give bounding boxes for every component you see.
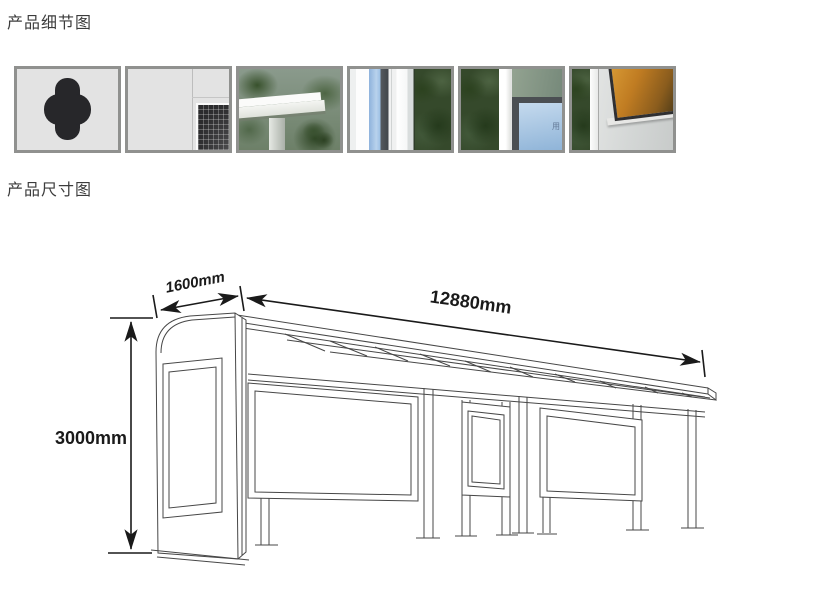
height-label: 3000mm bbox=[55, 428, 127, 448]
dimension-height: 3000mm bbox=[55, 318, 153, 553]
glass-reflection bbox=[512, 69, 563, 97]
end-cabinet bbox=[151, 313, 249, 565]
billboard-panel-1 bbox=[248, 383, 418, 501]
thumbnail-pillar-and-lightbox-edge bbox=[347, 66, 454, 153]
perforated-mesh-corner bbox=[196, 103, 229, 150]
poster-frame-corner: 用 bbox=[512, 97, 563, 150]
dimensions-section-title: 产品尺寸图 bbox=[7, 176, 92, 200]
roof bbox=[237, 315, 716, 400]
dimension-width: 12880mm bbox=[247, 286, 705, 377]
cutout-hole-shape bbox=[17, 69, 118, 150]
mid-lightbox bbox=[462, 402, 510, 497]
foliage-right bbox=[415, 69, 451, 150]
depth-label: 1600mm bbox=[164, 269, 226, 297]
billboard-panel-2 bbox=[540, 408, 642, 501]
amber-window bbox=[608, 66, 676, 121]
detail-thumbnail-strip: 用 bbox=[14, 66, 676, 153]
panel-seam-horizontal bbox=[192, 97, 229, 98]
foliage-left bbox=[572, 69, 590, 150]
foliage-left bbox=[461, 69, 499, 150]
shelter-dimension-drawing: 1600mm 12880mm 3000mm bbox=[40, 250, 740, 599]
pillar-seam bbox=[391, 69, 392, 150]
white-post bbox=[499, 69, 511, 150]
product-description-page: 产品细节图 bbox=[0, 0, 829, 599]
width-label: 12880mm bbox=[429, 286, 513, 317]
roof-pillar bbox=[269, 118, 285, 152]
sky-poster: 用 bbox=[519, 103, 563, 150]
panel-seam-vertical bbox=[192, 69, 193, 150]
poster-faint-text: 用 bbox=[552, 121, 560, 132]
end-poster-lightbox bbox=[163, 358, 222, 518]
thumbnail-roof-corner bbox=[236, 66, 343, 153]
leaf-overlay bbox=[300, 119, 334, 149]
thumbnail-frame-corner-sky-poster: 用 bbox=[458, 66, 565, 153]
details-section-title: 产品细节图 bbox=[7, 9, 92, 33]
thumbnail-panel-corner-mesh bbox=[125, 66, 232, 153]
white-strip bbox=[590, 69, 599, 150]
thumbnail-amber-glass-window bbox=[569, 66, 676, 153]
dimension-depth: 1600mm bbox=[153, 269, 244, 318]
thumbnail-panel-cutout-hole bbox=[14, 66, 121, 153]
